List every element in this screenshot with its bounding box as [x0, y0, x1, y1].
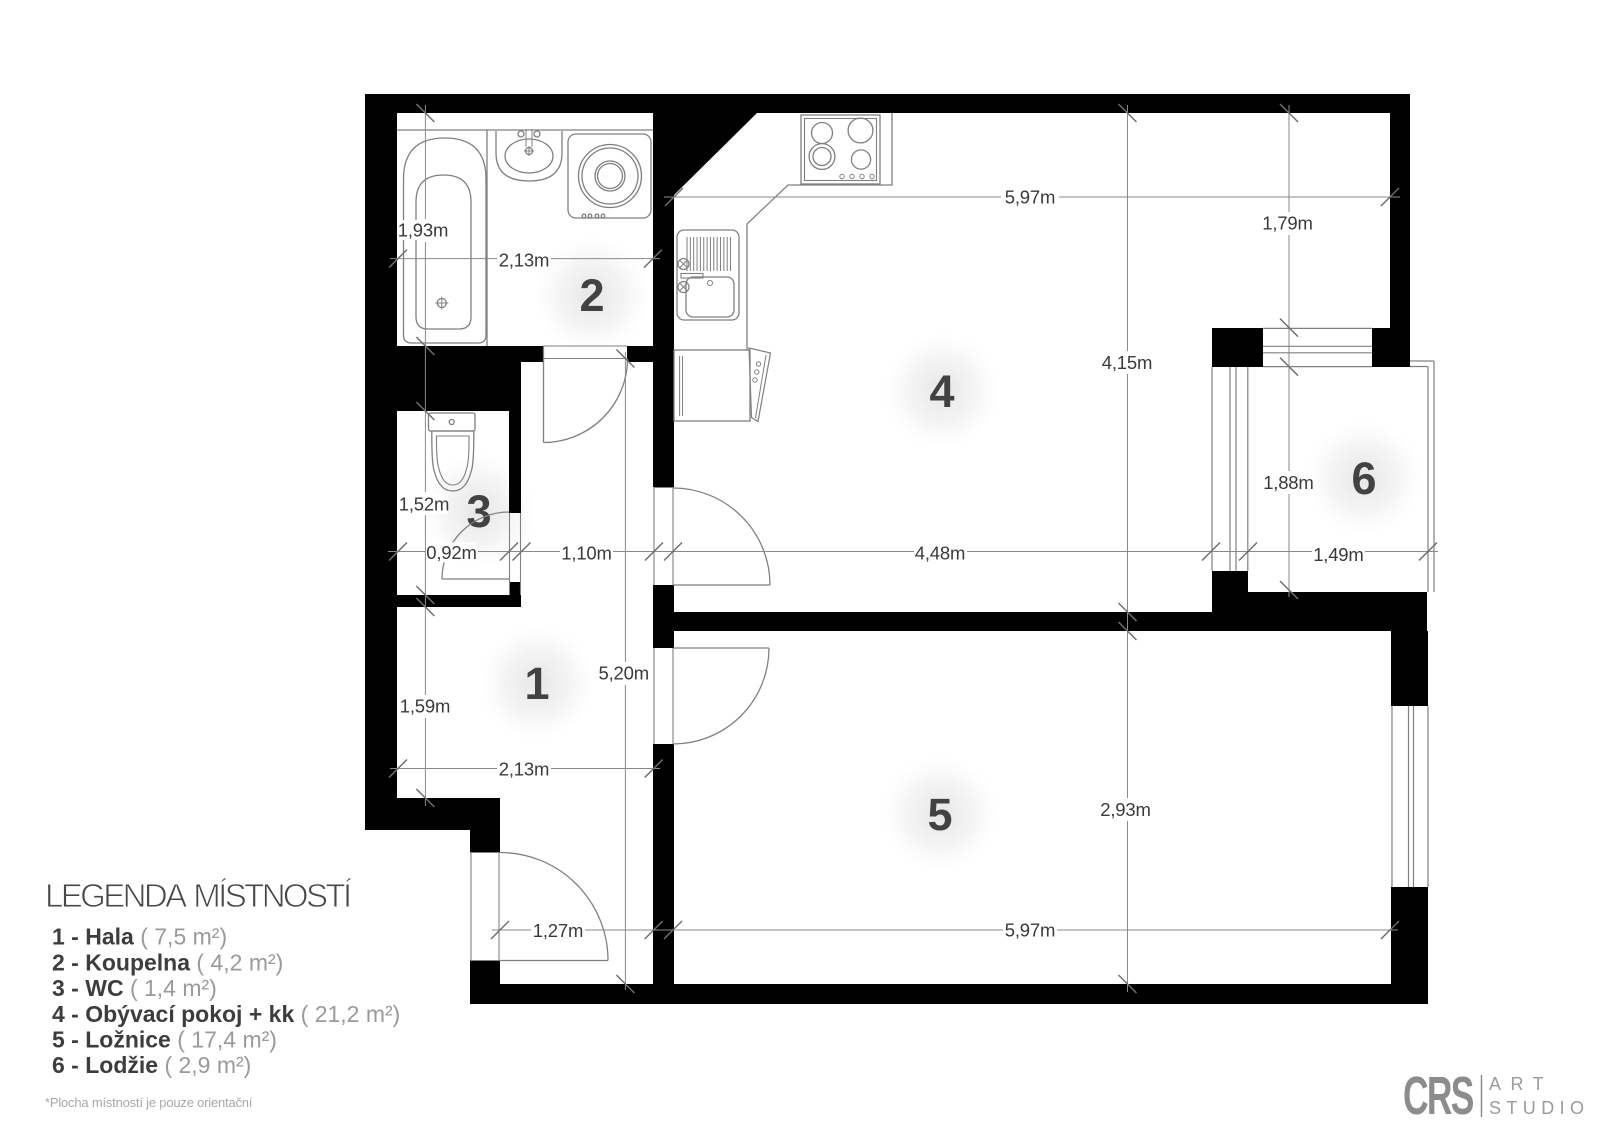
svg-text:0,92m: 0,92m	[426, 542, 476, 563]
svg-text:1,10m: 1,10m	[561, 542, 611, 563]
svg-text:4,48m: 4,48m	[915, 543, 965, 564]
svg-text:ART: ART	[1489, 1074, 1553, 1094]
svg-text:2: 2	[579, 270, 604, 321]
svg-text:3 - WC ( 1,4 m²): 3 - WC ( 1,4 m²)	[52, 975, 217, 1001]
svg-text:*Plocha místností je pouze ori: *Plocha místností je pouze orientační	[45, 1095, 253, 1110]
svg-text:3: 3	[466, 486, 491, 537]
svg-text:6 - Lodžie ( 2,9 m²): 6 - Lodžie ( 2,9 m²)	[52, 1052, 251, 1078]
svg-text:5,97m: 5,97m	[1005, 919, 1055, 940]
svg-text:STUDIO: STUDIO	[1489, 1098, 1589, 1118]
svg-text:1,52m: 1,52m	[399, 493, 449, 514]
svg-text:4 - Obývací pokoj + kk ( 21,2: 4 - Obývací pokoj + kk ( 21,2 m²)	[52, 1001, 400, 1027]
svg-text:1,27m: 1,27m	[533, 920, 583, 941]
svg-text:5,20m: 5,20m	[598, 663, 648, 684]
svg-text:5,97m: 5,97m	[1005, 187, 1055, 208]
svg-text:6: 6	[1351, 453, 1376, 504]
svg-text:1,93m: 1,93m	[398, 220, 448, 241]
svg-text:1: 1	[524, 658, 549, 709]
svg-text:5: 5	[927, 789, 952, 840]
svg-text:2,13m: 2,13m	[499, 759, 549, 780]
svg-text:1,79m: 1,79m	[1262, 213, 1312, 234]
svg-text:1,49m: 1,49m	[1313, 544, 1363, 565]
svg-text:5 - Ložnice ( 17,4 m²): 5 - Ložnice ( 17,4 m²)	[52, 1027, 277, 1053]
svg-text:1 - Hala ( 7,5 m²): 1 - Hala ( 7,5 m²)	[52, 924, 227, 950]
svg-text:LEGENDA MÍSTNOSTÍ: LEGENDA MÍSTNOSTÍ	[45, 877, 353, 914]
svg-text:2 - Koupelna ( 4,2 m²): 2 - Koupelna ( 4,2 m²)	[52, 950, 283, 976]
svg-text:1,88m: 1,88m	[1263, 472, 1313, 493]
svg-text:2,13m: 2,13m	[499, 249, 549, 270]
svg-text:1,59m: 1,59m	[400, 696, 450, 717]
svg-text:4: 4	[929, 366, 954, 417]
svg-text:2,93m: 2,93m	[1100, 799, 1150, 820]
svg-text:CRS: CRS	[1403, 1065, 1473, 1125]
svg-text:4,15m: 4,15m	[1102, 352, 1152, 373]
